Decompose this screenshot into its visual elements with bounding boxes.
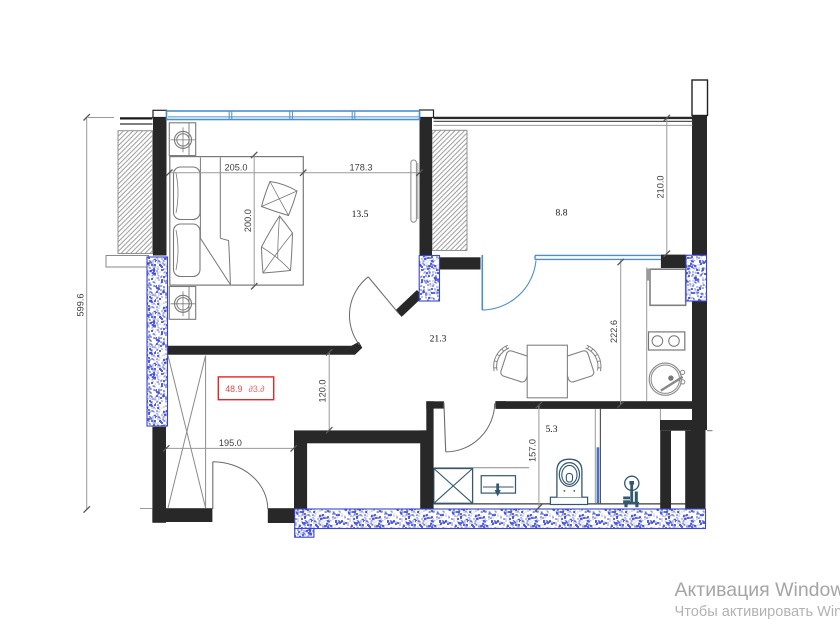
svg-text:48.9: 48.9 [225, 384, 242, 394]
svg-text:599.6: 599.6 [76, 294, 86, 317]
svg-text:200.0: 200.0 [243, 209, 253, 232]
svg-text:120.0: 120.0 [318, 380, 328, 403]
svg-text:Активация Windows: Активация Windows [675, 579, 840, 601]
svg-text:∂3.∂: ∂3.∂ [248, 384, 265, 394]
svg-text:13.5: 13.5 [352, 209, 369, 220]
svg-text:8.8: 8.8 [556, 208, 568, 219]
svg-text:210.0: 210.0 [655, 176, 665, 199]
svg-text:5.3: 5.3 [546, 424, 558, 435]
svg-text:222.6: 222.6 [609, 320, 619, 343]
svg-text:205.0: 205.0 [225, 162, 248, 172]
svg-text:178.3: 178.3 [350, 162, 373, 172]
svg-text:157.0: 157.0 [527, 439, 537, 462]
svg-text:Чтобы активировать Windows, пе: Чтобы активировать Windows, перейдите [675, 604, 840, 620]
svg-text:195.0: 195.0 [219, 438, 242, 448]
svg-text:21.3: 21.3 [430, 334, 447, 345]
